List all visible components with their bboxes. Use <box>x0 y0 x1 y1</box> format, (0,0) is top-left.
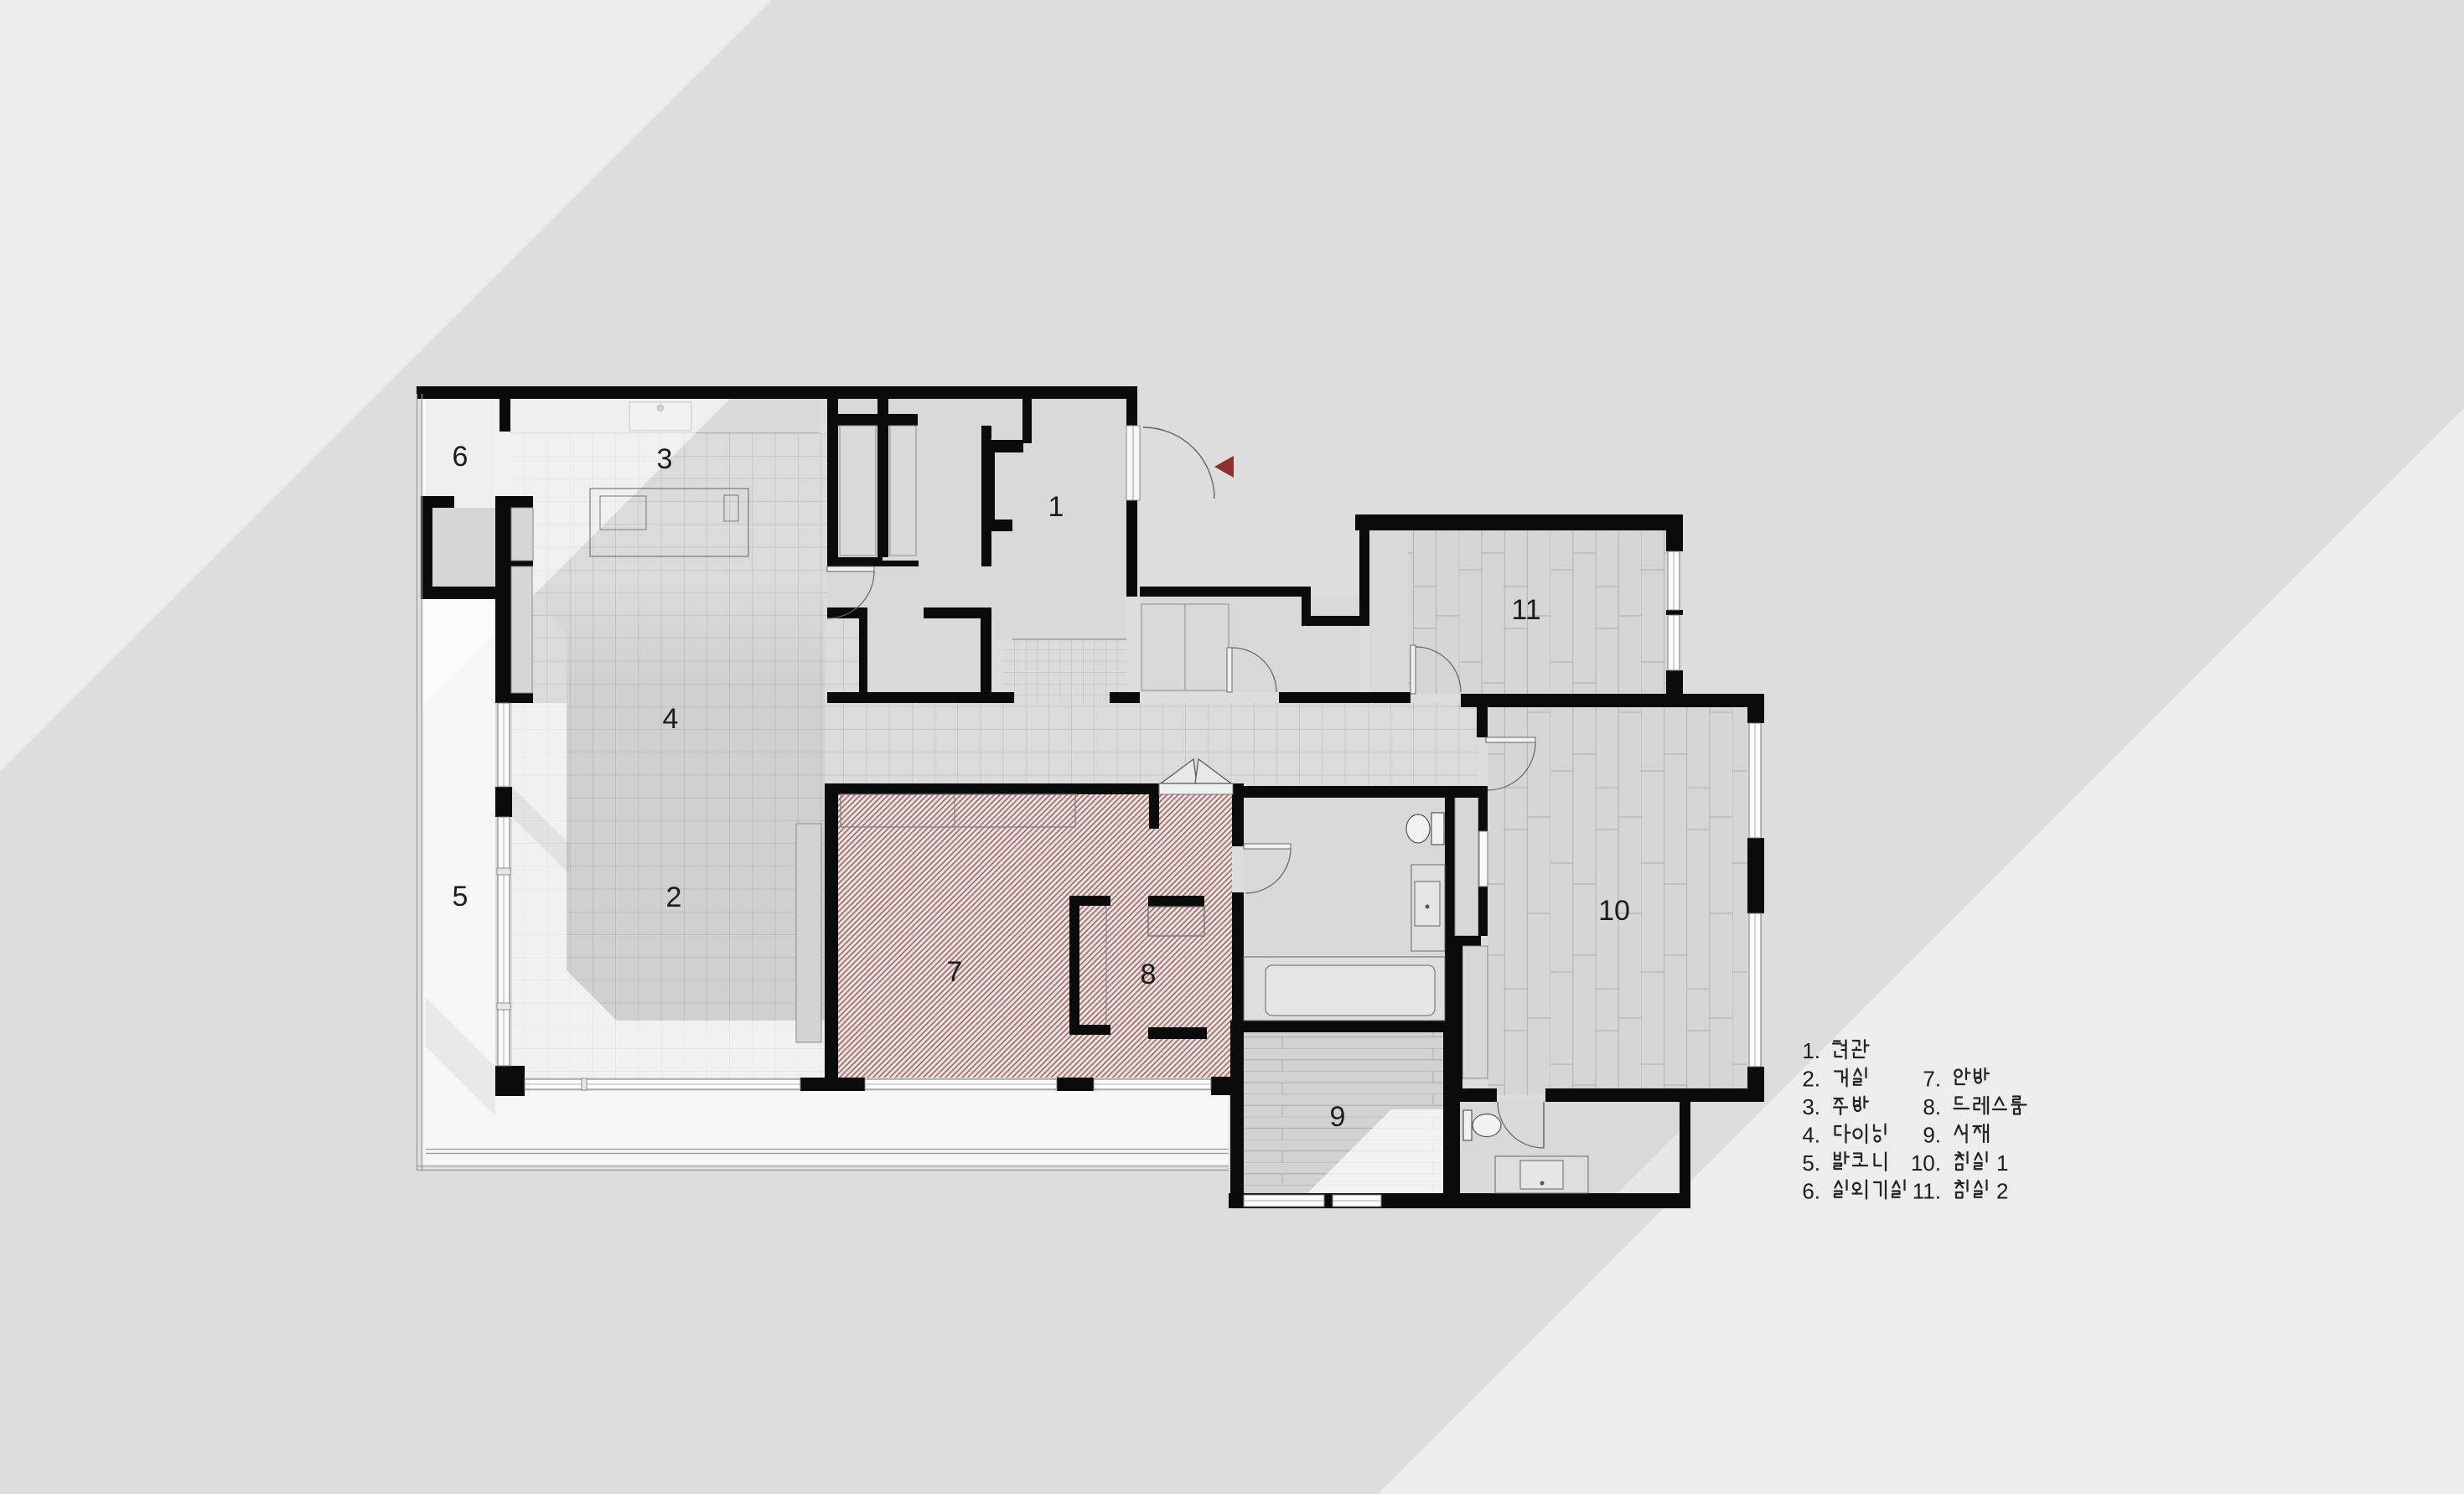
svg-text:4: 4 <box>663 703 679 735</box>
svg-text:6: 6 <box>453 441 468 473</box>
svg-text:2: 2 <box>1996 1179 2008 1204</box>
svg-text:1.: 1. <box>1802 1038 1820 1063</box>
svg-text:4.: 4. <box>1802 1123 1820 1148</box>
svg-text:10: 10 <box>1598 895 1630 927</box>
svg-text:3.: 3. <box>1802 1094 1820 1119</box>
svg-text:2: 2 <box>666 881 682 913</box>
svg-text:6.: 6. <box>1802 1179 1820 1204</box>
svg-text:9: 9 <box>1330 1101 1346 1133</box>
svg-text:7.: 7. <box>1923 1067 1941 1092</box>
svg-text:1: 1 <box>1996 1150 2008 1176</box>
svg-text:11.: 11. <box>1913 1179 1941 1204</box>
svg-text:9.: 9. <box>1923 1123 1941 1148</box>
svg-text:5: 5 <box>453 881 468 912</box>
svg-text:7: 7 <box>947 956 963 988</box>
svg-text:5.: 5. <box>1802 1150 1820 1176</box>
svg-text:8.: 8. <box>1923 1094 1941 1119</box>
svg-text:8: 8 <box>1141 959 1157 990</box>
svg-text:11: 11 <box>1511 594 1540 626</box>
svg-text:1: 1 <box>1048 491 1064 523</box>
svg-text:3: 3 <box>657 443 673 475</box>
svg-text:10.: 10. <box>1911 1150 1941 1176</box>
svg-text:2.: 2. <box>1802 1067 1820 1092</box>
